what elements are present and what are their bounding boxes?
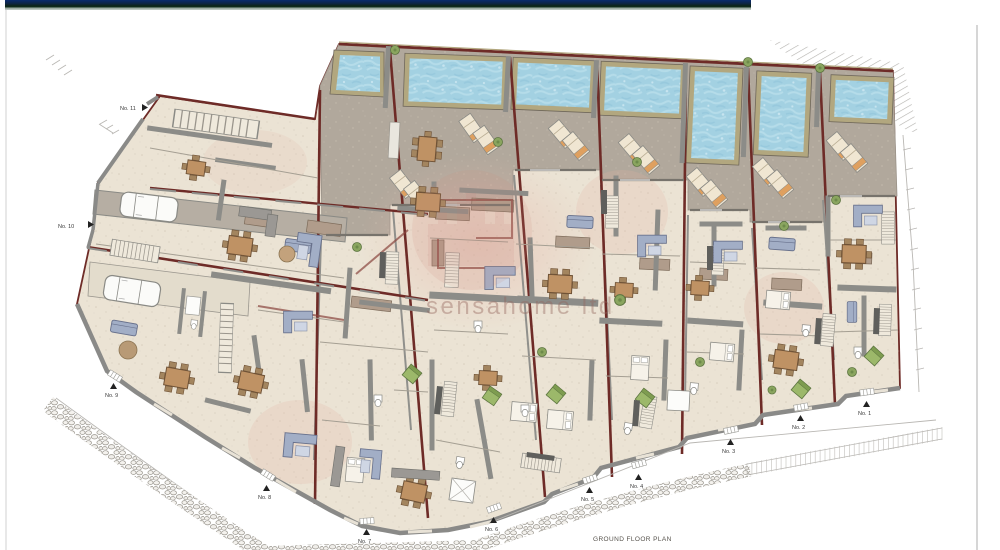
svg-text:No. 6: No. 6 [485,527,498,533]
svg-text:No. 2: No. 2 [792,425,805,431]
svg-text:No. 8: No. 8 [258,495,271,501]
svg-text:No. 3: No. 3 [722,449,735,455]
svg-text:No. 4: No. 4 [630,484,643,490]
svg-text:GROUND FLOOR PLAN: GROUND FLOOR PLAN [593,536,672,543]
svg-text:No. 9: No. 9 [105,393,118,399]
svg-text:No. 1: No. 1 [858,411,871,417]
svg-text:No. 7: No. 7 [358,539,371,545]
svg-text:No. 11: No. 11 [120,106,136,112]
svg-text:No. 5: No. 5 [581,497,594,503]
svg-text:sensahome ltd: sensahome ltd [426,293,615,320]
svg-text:No. 10: No. 10 [58,224,74,230]
